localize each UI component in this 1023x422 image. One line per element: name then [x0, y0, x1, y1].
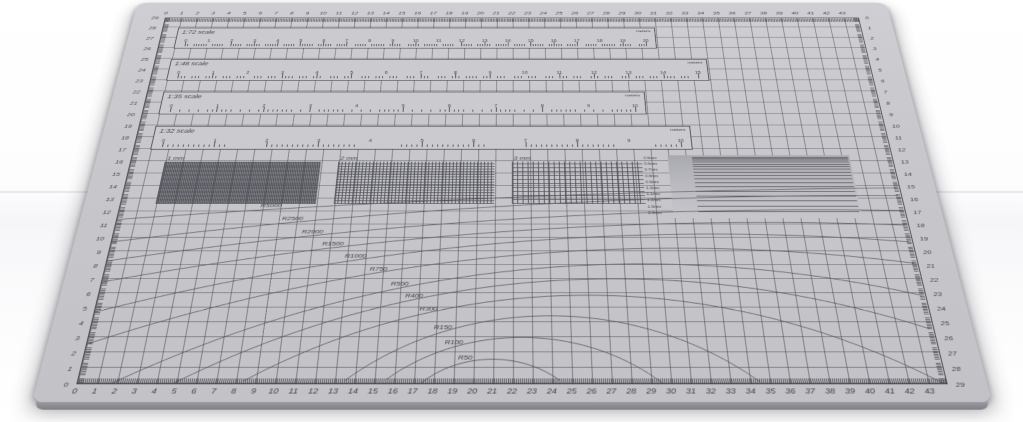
radius-curve-label: R5000 — [260, 203, 282, 209]
top-edge-number: 24 — [540, 11, 547, 16]
left-edge-number: 3 — [75, 334, 81, 341]
right-edge-number: 4 — [875, 57, 880, 62]
bottom-edge-number: 17 — [407, 387, 417, 395]
cutting-mat-wrap: 0123456789101112131415161718192021222324… — [32, 3, 992, 402]
bottom-edge-number: 0 — [71, 387, 78, 395]
radius-curve-R100 — [386, 337, 663, 384]
top-edge-number: 38 — [760, 11, 768, 16]
left-edge-number: 19 — [124, 123, 133, 129]
right-edge-number: 13 — [900, 159, 909, 165]
bottom-edge-number: 23 — [527, 387, 537, 395]
bottom-edge-number: 21 — [487, 387, 497, 395]
left-edge-number: 6 — [86, 290, 92, 297]
radius-curve-label: R150 — [434, 324, 453, 331]
bottom-edge-number: 16 — [387, 387, 398, 395]
bottom-edge-number: 22 — [507, 387, 517, 395]
bottom-edge-number: 13 — [328, 387, 339, 395]
left-edge-number: 17 — [118, 147, 127, 153]
radius-curve-R750 — [86, 248, 933, 344]
bottom-edge-number: 36 — [785, 387, 796, 395]
left-edge-number: 29 — [151, 15, 159, 20]
left-edge-number: 10 — [95, 235, 105, 241]
top-edge-number: 28 — [603, 11, 610, 16]
left-edge-number: 24 — [138, 67, 147, 72]
radius-curve-R1500 — [101, 222, 918, 282]
top-edge-number: 18 — [445, 11, 452, 16]
radius-curve-label: R300 — [419, 305, 437, 312]
radius-curves — [76, 18, 947, 385]
right-edge-number: 19 — [919, 235, 929, 241]
left-edge-number: 21 — [129, 100, 138, 105]
right-edge-number: 7 — [883, 89, 888, 94]
top-edge-number: 5 — [242, 11, 246, 16]
bottom-edge-number: 6 — [191, 387, 197, 395]
radius-curve-label: R750 — [369, 265, 387, 272]
bottom-edge-number: 3 — [131, 387, 138, 395]
left-edge-number: 28 — [148, 25, 156, 30]
radius-curve-R300 — [243, 295, 943, 383]
left-edge-number: 12 — [102, 209, 112, 215]
bottom-edge-number: 34 — [745, 387, 756, 395]
right-edge-number: 23 — [932, 290, 942, 297]
left-edge-number: 16 — [115, 159, 124, 165]
top-edge-number: 34 — [697, 11, 705, 16]
bottom-edge-number: 43 — [924, 387, 936, 395]
bottom-edge-number: 2 — [111, 387, 118, 395]
right-edge-number: 6 — [880, 78, 885, 83]
top-edge-number: 13 — [367, 11, 374, 16]
radius-curve-label: R2000 — [301, 229, 323, 235]
radius-curve-R1000 — [94, 234, 926, 312]
right-edge-number: 11 — [894, 135, 902, 141]
top-edge-ticks — [164, 18, 860, 21]
right-edge-number: 5 — [877, 67, 882, 72]
bottom-edge-number: 27 — [606, 387, 616, 395]
top-edge-number: 3 — [211, 11, 215, 16]
bottom-edge-number: 25 — [567, 387, 577, 395]
top-edge-number: 2 — [195, 11, 200, 16]
top-edge-number: 17 — [430, 11, 437, 16]
right-edge-number: 3 — [872, 46, 877, 51]
left-edge-number: 13 — [105, 196, 114, 202]
right-edge-number: 0 — [865, 15, 870, 20]
top-edge-number: 0 — [164, 11, 169, 16]
left-edge-number: 18 — [121, 135, 130, 141]
top-edge-number: 15 — [398, 11, 405, 16]
radius-curve-R150 — [345, 316, 760, 382]
radius-curve-R500 — [111, 264, 943, 384]
bottom-edge-number: 19 — [447, 387, 457, 395]
right-edge-number: 21 — [926, 262, 936, 269]
bottom-edge-number: 10 — [268, 387, 279, 395]
top-edge-number: 8 — [290, 11, 294, 16]
radius-curve-label: R500 — [391, 281, 409, 288]
bottom-edge-number: 39 — [844, 387, 856, 395]
bottom-edge-number: 20 — [467, 387, 477, 395]
bottom-edge-number: 32 — [705, 387, 716, 395]
left-edge-number: 2 — [71, 349, 77, 356]
top-edge-number: 12 — [351, 11, 359, 16]
top-edge-number: 11 — [335, 11, 342, 16]
right-edge-number: 28 — [951, 365, 962, 372]
left-edge-number: 23 — [135, 78, 144, 83]
right-edge-number: 2 — [870, 36, 875, 41]
right-edge-number: 22 — [929, 276, 939, 283]
bottom-edge-number: 26 — [586, 387, 596, 395]
top-edge-number: 1 — [179, 11, 184, 16]
bottom-edge-number: 24 — [547, 387, 557, 395]
bottom-edge-number: 12 — [308, 387, 319, 395]
bottom-edge-number: 31 — [686, 387, 697, 395]
top-edge-number: 31 — [650, 11, 657, 16]
left-edge-number: 1 — [67, 365, 73, 372]
bottom-edge-number: 38 — [824, 387, 835, 395]
right-edge-number: 29 — [955, 381, 966, 389]
bottom-edge-number: 18 — [427, 387, 437, 395]
top-edge-number: 9 — [305, 11, 309, 16]
top-edge-number: 10 — [319, 11, 327, 16]
top-edge-number: 25 — [555, 11, 562, 16]
top-edge-number: 16 — [414, 11, 421, 16]
radius-curve-R2500 — [111, 195, 909, 241]
cutting-mat: 0123456789101112131415161718192021222324… — [32, 3, 992, 402]
top-edge-number: 7 — [274, 11, 278, 16]
top-edge-number: 26 — [571, 11, 578, 16]
right-edge-number: 20 — [922, 249, 932, 255]
top-edge-number: 4 — [227, 11, 231, 16]
top-edge-number: 29 — [618, 11, 625, 16]
left-edge-number: 25 — [141, 57, 149, 62]
bottom-edge-number: 15 — [368, 387, 379, 395]
right-edge-number: 9 — [888, 112, 893, 117]
radius-curve-label: R400 — [405, 292, 423, 299]
radius-curve-label: R1000 — [344, 253, 366, 259]
bottom-edge-number: 40 — [864, 387, 876, 395]
left-edge-number: 0 — [63, 381, 69, 389]
bottom-edge-number: 35 — [765, 387, 776, 395]
top-edge-number: 33 — [681, 11, 689, 16]
bottom-edge-number: 14 — [348, 387, 359, 395]
top-edge-number: 36 — [728, 11, 736, 16]
left-edge-number: 14 — [108, 183, 117, 189]
left-edge-number: 27 — [146, 36, 154, 41]
top-edge-number: 14 — [382, 11, 389, 16]
photo-scene: 0123456789101112131415161718192021222324… — [0, 0, 1023, 422]
radius-curve-label: R50 — [458, 354, 473, 361]
top-edge-number: 20 — [477, 11, 484, 16]
left-edge-number: 7 — [89, 276, 95, 283]
left-edge-number: 4 — [78, 319, 84, 326]
bottom-edge-number: 1 — [91, 387, 98, 395]
top-edge-number: 37 — [744, 11, 752, 16]
top-edge-number: 6 — [258, 11, 262, 16]
left-edge-number: 22 — [132, 89, 141, 94]
right-edge-number: 17 — [912, 209, 922, 215]
right-edge-number: 26 — [943, 334, 953, 341]
top-edge-number: 41 — [807, 11, 815, 16]
radius-curve-label: R100 — [445, 339, 464, 346]
right-edge-number: 10 — [891, 123, 900, 129]
left-edge-number: 11 — [99, 222, 108, 228]
bottom-edge-number: 41 — [884, 387, 896, 395]
top-edge-number: 35 — [712, 11, 720, 16]
right-edge-number: 14 — [903, 171, 912, 177]
left-edge-number: 9 — [96, 249, 102, 255]
top-edge-number: 19 — [461, 11, 468, 16]
right-edge-number: 25 — [940, 319, 950, 326]
bottom-edge-number: 7 — [211, 387, 217, 395]
top-edge-number: 39 — [775, 11, 783, 16]
top-edge-number: 32 — [665, 11, 673, 16]
right-edge-number: 24 — [936, 305, 946, 312]
radius-curve-label: R2500 — [282, 216, 304, 222]
left-edge-number: 20 — [127, 112, 136, 117]
left-edge-number: 5 — [82, 305, 88, 312]
bottom-edge-ticks — [76, 378, 947, 384]
left-edge-number: 26 — [143, 46, 151, 51]
right-edge-number: 16 — [909, 196, 918, 202]
bottom-edge-number: 42 — [904, 387, 916, 395]
bottom-edge-number: 5 — [171, 387, 178, 395]
bottom-edge-number: 11 — [288, 387, 298, 395]
top-edge-number: 21 — [493, 11, 500, 16]
top-edge-number: 30 — [634, 11, 641, 16]
bottom-edge-number: 28 — [626, 387, 637, 395]
right-edge-number: 15 — [906, 183, 915, 189]
top-edge-number: 43 — [838, 11, 846, 16]
top-edge-number: 42 — [822, 11, 830, 16]
right-edge-number: 18 — [916, 222, 926, 228]
bottom-edge-number: 37 — [805, 387, 816, 395]
left-edge-number: 8 — [93, 262, 99, 269]
right-edge-number: 12 — [897, 147, 906, 153]
bottom-edge-number: 4 — [151, 387, 158, 395]
bottom-edge-number: 8 — [231, 387, 237, 395]
left-edge-number: 15 — [112, 171, 121, 177]
bottom-edge-number: 33 — [725, 387, 736, 395]
bottom-edge-number: 9 — [250, 387, 256, 395]
right-edge-number: 1 — [867, 25, 872, 30]
top-edge-number: 40 — [791, 11, 799, 16]
top-edge-number: 22 — [508, 11, 515, 16]
radius-curve-R400 — [174, 279, 943, 383]
bottom-edge-number: 30 — [666, 387, 677, 395]
radius-curve-R5000 — [116, 188, 903, 220]
top-edge-number: 23 — [524, 11, 531, 16]
right-edge-number: 8 — [886, 100, 891, 105]
bottom-edge-number: 29 — [646, 387, 657, 395]
right-edge-number: 27 — [947, 349, 957, 356]
top-edge-number: 27 — [587, 11, 594, 16]
radius-curve-label: R1500 — [322, 241, 344, 247]
